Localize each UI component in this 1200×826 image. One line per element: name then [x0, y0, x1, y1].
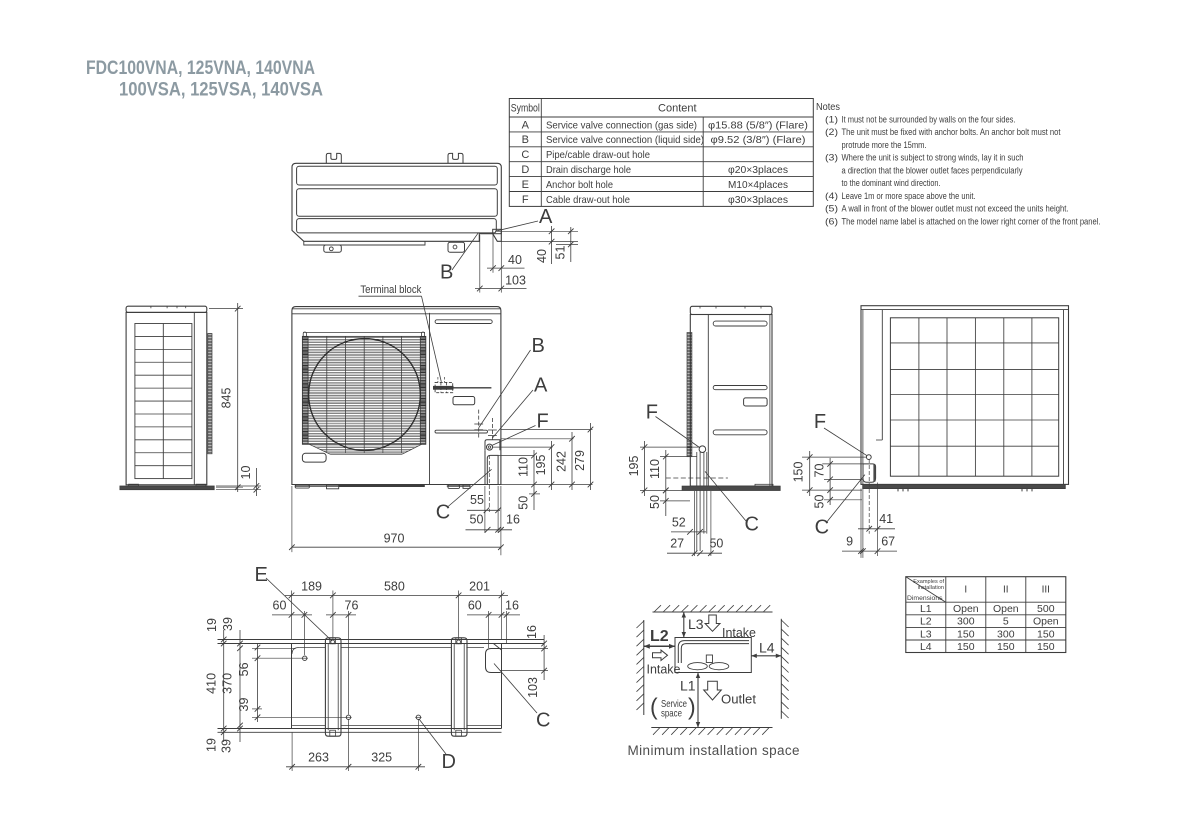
svg-text:50: 50 [709, 536, 723, 550]
svg-text:L1: L1 [920, 603, 932, 615]
svg-text:150: 150 [957, 628, 975, 640]
svg-text:A: A [539, 206, 553, 228]
svg-text:40: 40 [535, 249, 549, 263]
svg-text:242: 242 [555, 451, 569, 472]
svg-text:52: 52 [672, 515, 686, 529]
svg-text:B: B [522, 134, 529, 146]
svg-text:C: C [436, 502, 450, 524]
svg-text:F: F [522, 194, 529, 206]
svg-text:845: 845 [220, 388, 234, 409]
svg-text:Terminal block: Terminal block [360, 284, 421, 296]
svg-text:195: 195 [534, 455, 548, 476]
svg-text:19: 19 [205, 738, 219, 752]
svg-text:56: 56 [237, 662, 251, 676]
svg-text:φ15.88 (5/8″) (Flare): φ15.88 (5/8″) (Flare) [708, 119, 808, 131]
svg-text:Notes: Notes [816, 102, 840, 113]
svg-text:Minimum installation space: Minimum installation space [628, 743, 800, 758]
svg-text:70: 70 [813, 464, 827, 478]
svg-text:B: B [532, 335, 545, 357]
svg-text:39: 39 [221, 617, 235, 631]
svg-text:A wall in front of the blower: A wall in front of the blower outlet mus… [842, 204, 1069, 215]
svg-text:II: II [1003, 585, 1009, 596]
svg-text:41: 41 [879, 512, 893, 526]
svg-text:protrude more the 15mm.: protrude more the 15mm. [842, 140, 927, 151]
svg-text:Symbol: Symbol [511, 103, 540, 115]
svg-text:150: 150 [1037, 641, 1055, 653]
svg-text:Leave 1m or more space above t: Leave 1m or more space above the unit. [842, 191, 976, 202]
svg-text:50: 50 [517, 496, 531, 510]
svg-text:16: 16 [525, 625, 539, 639]
svg-text:100VSA, 125VSA, 140VSA: 100VSA, 125VSA, 140VSA [119, 80, 323, 101]
svg-text:500: 500 [1037, 603, 1055, 615]
svg-text:300: 300 [997, 628, 1015, 640]
svg-text:195: 195 [627, 456, 641, 477]
svg-text:(: ( [650, 694, 658, 720]
svg-text:E: E [255, 564, 268, 586]
svg-text:It must not be surrounded by w: It must not be surrounded by walls on th… [842, 114, 1016, 125]
svg-text:76: 76 [345, 598, 359, 612]
svg-text:39: 39 [237, 698, 251, 712]
svg-text:110: 110 [517, 457, 531, 477]
svg-text:55: 55 [470, 493, 484, 507]
svg-text:67: 67 [881, 534, 895, 548]
svg-text:Dimensions: Dimensions [907, 595, 943, 602]
svg-text:L1: L1 [680, 678, 696, 694]
svg-text:Pipe/cable draw-out hole: Pipe/cable draw-out hole [546, 149, 650, 161]
svg-text:φ9.52 (3/8″) (Flare): φ9.52 (3/8″) (Flare) [711, 134, 806, 146]
svg-text:C: C [521, 149, 529, 161]
svg-text:III: III [1042, 585, 1050, 596]
svg-text:189: 189 [301, 579, 322, 593]
svg-text:150: 150 [997, 641, 1015, 653]
svg-text:325: 325 [371, 751, 392, 765]
svg-text:27: 27 [670, 536, 684, 550]
svg-text:Intake: Intake [647, 663, 681, 677]
svg-text:Service valve connection (liqu: Service valve connection (liquid side) [546, 134, 704, 146]
svg-text:φ30×3places: φ30×3places [728, 194, 788, 206]
svg-text:B: B [440, 262, 453, 284]
svg-text:60: 60 [468, 598, 482, 612]
svg-text:F: F [814, 411, 826, 433]
svg-text:51: 51 [554, 246, 568, 260]
svg-text:The model name label is attach: The model name label is attached on the … [842, 217, 1101, 228]
svg-text:10: 10 [239, 466, 253, 480]
svg-text:The unit must be fixed with an: The unit must be fixed with anchor bolts… [842, 127, 1061, 138]
svg-text:16: 16 [506, 513, 520, 527]
svg-text:FDC100VNA, 125VNA, 140VNA: FDC100VNA, 125VNA, 140VNA [86, 58, 315, 79]
svg-text:Open: Open [1033, 616, 1059, 628]
svg-text:103: 103 [526, 677, 540, 698]
svg-text:A: A [522, 119, 530, 131]
svg-text:E: E [522, 179, 529, 191]
svg-text:9: 9 [846, 534, 853, 548]
svg-text:5: 5 [1003, 616, 1009, 628]
svg-text:Anchor bolt hole: Anchor bolt hole [546, 179, 613, 191]
svg-text:I: I [964, 585, 967, 596]
svg-text:150: 150 [1037, 628, 1055, 640]
svg-text:(2): (2) [825, 127, 838, 138]
svg-text:M10×4places: M10×4places [728, 179, 788, 191]
svg-text:410: 410 [205, 673, 219, 694]
svg-text:50: 50 [648, 495, 662, 509]
svg-text:(5): (5) [825, 204, 838, 215]
svg-text:16: 16 [505, 598, 519, 612]
svg-text:A: A [534, 375, 548, 397]
svg-text:installation: installation [918, 585, 944, 591]
svg-text:263: 263 [308, 751, 329, 765]
svg-text:(1): (1) [825, 114, 838, 125]
svg-text:L3: L3 [920, 628, 932, 640]
svg-text:110: 110 [648, 459, 662, 479]
svg-text:201: 201 [469, 579, 490, 593]
svg-text:39: 39 [220, 739, 234, 753]
svg-text:D: D [521, 164, 529, 176]
svg-text:580: 580 [384, 579, 405, 593]
svg-text:L4: L4 [759, 640, 775, 656]
svg-text:a direction that the blower ou: a direction that the blower outlet faces… [842, 165, 1023, 176]
svg-text:Service valve connection (gas: Service valve connection (gas side) [546, 119, 697, 131]
svg-text:Intake: Intake [722, 626, 756, 640]
svg-text:L3: L3 [688, 616, 704, 632]
svg-text:279: 279 [573, 450, 587, 471]
svg-text:Cable draw-out hole: Cable draw-out hole [546, 194, 630, 206]
svg-text:60: 60 [273, 598, 287, 612]
svg-text:): ) [688, 694, 696, 720]
svg-text:φ20×3places: φ20×3places [728, 164, 788, 176]
svg-text:C: C [536, 710, 550, 732]
svg-text:L4: L4 [920, 641, 932, 653]
svg-text:970: 970 [384, 531, 405, 545]
svg-text:(6): (6) [825, 217, 838, 228]
svg-text:L2: L2 [920, 616, 932, 628]
svg-text:C: C [745, 514, 759, 536]
svg-text:370: 370 [221, 673, 235, 694]
svg-text:to the dominant wind direction: to the dominant wind direction. [842, 178, 941, 189]
svg-text:Open: Open [993, 603, 1019, 615]
svg-text:Outlet: Outlet [721, 693, 757, 707]
svg-text:150: 150 [792, 462, 806, 483]
svg-text:50: 50 [470, 513, 484, 527]
svg-text:Where the unit is subject to s: Where the unit is subject to strong wind… [842, 153, 1024, 164]
svg-text:(3): (3) [825, 153, 838, 164]
svg-text:50: 50 [813, 495, 827, 509]
svg-text:F: F [646, 402, 658, 424]
svg-text:D: D [442, 751, 456, 773]
svg-text:space: space [661, 708, 682, 720]
svg-text:(4): (4) [825, 191, 838, 202]
svg-text:C: C [815, 517, 829, 539]
svg-text:L2: L2 [650, 628, 669, 645]
svg-text:Drain discharge hole: Drain discharge hole [546, 164, 631, 176]
svg-text:Open: Open [953, 603, 979, 615]
svg-text:40: 40 [508, 253, 522, 267]
svg-text:Content: Content [658, 103, 697, 115]
svg-text:19: 19 [205, 618, 219, 632]
svg-text:103: 103 [505, 274, 526, 288]
svg-text:300: 300 [957, 616, 975, 628]
svg-text:150: 150 [957, 641, 975, 653]
